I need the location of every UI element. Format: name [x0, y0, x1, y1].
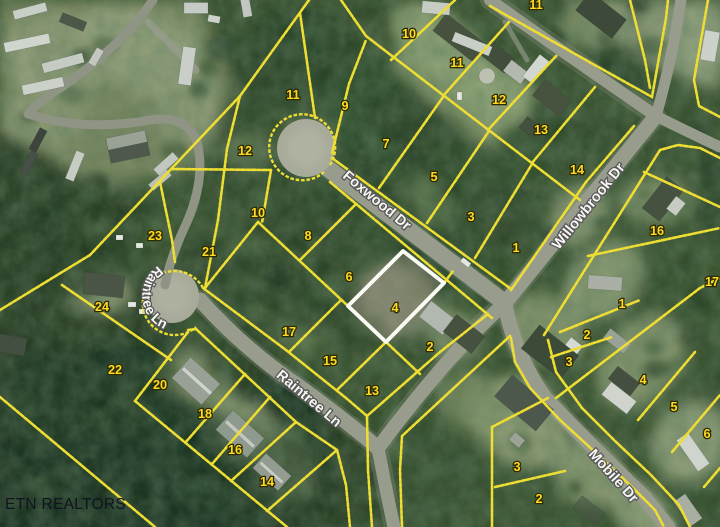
svg-text:1: 1	[512, 241, 519, 255]
svg-text:2: 2	[426, 340, 433, 354]
svg-text:16: 16	[650, 224, 664, 238]
svg-text:6: 6	[703, 427, 710, 441]
svg-text:5: 5	[670, 400, 677, 414]
svg-text:8: 8	[304, 229, 311, 243]
svg-text:12: 12	[238, 144, 252, 158]
svg-text:17: 17	[282, 325, 296, 339]
svg-text:5: 5	[430, 170, 437, 184]
svg-text:17: 17	[705, 275, 719, 289]
svg-text:13: 13	[534, 123, 548, 137]
svg-text:13: 13	[365, 384, 379, 398]
svg-text:14: 14	[570, 163, 584, 177]
svg-text:ETN REALTORS: ETN REALTORS	[5, 496, 126, 513]
svg-text:2: 2	[535, 492, 542, 506]
svg-text:10: 10	[251, 206, 265, 220]
svg-text:3: 3	[513, 460, 520, 474]
svg-text:11: 11	[529, 0, 542, 12]
svg-text:24: 24	[95, 300, 109, 314]
svg-text:1: 1	[618, 297, 625, 311]
svg-text:18: 18	[198, 407, 212, 421]
svg-text:21: 21	[202, 245, 216, 259]
svg-text:14: 14	[260, 475, 274, 489]
svg-text:2: 2	[583, 328, 590, 342]
svg-text:9: 9	[341, 99, 348, 113]
svg-text:15: 15	[323, 354, 337, 368]
svg-text:7: 7	[382, 137, 389, 151]
svg-text:23: 23	[148, 229, 162, 243]
svg-text:11: 11	[450, 56, 463, 70]
svg-text:3: 3	[467, 210, 474, 224]
svg-text:12: 12	[492, 93, 506, 107]
svg-text:20: 20	[153, 378, 167, 392]
svg-text:10: 10	[402, 27, 416, 41]
svg-text:22: 22	[108, 363, 122, 377]
svg-text:3: 3	[565, 355, 572, 369]
svg-text:6: 6	[345, 270, 352, 284]
svg-text:16: 16	[228, 443, 242, 457]
svg-text:4: 4	[639, 373, 646, 387]
svg-text:4: 4	[391, 301, 398, 315]
svg-text:11: 11	[286, 88, 299, 102]
